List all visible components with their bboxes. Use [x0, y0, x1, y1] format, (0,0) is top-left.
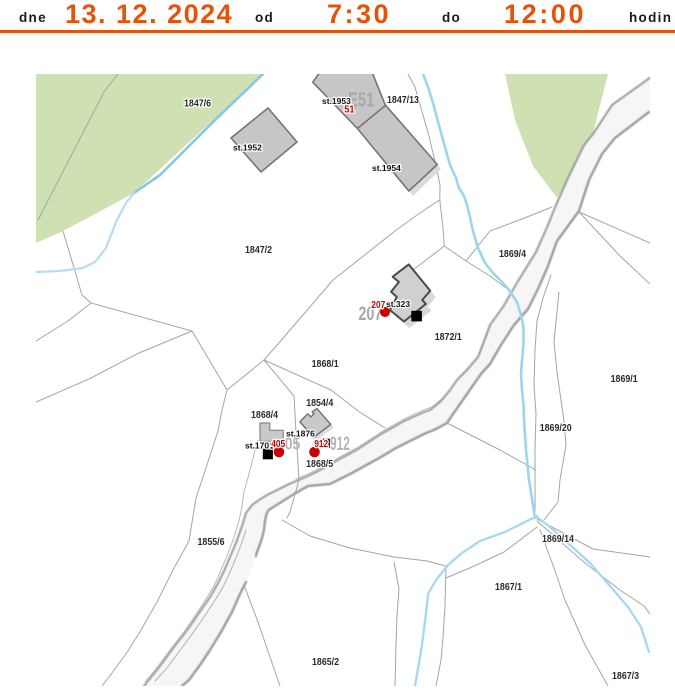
- svg-text:1847/6: 1847/6: [184, 98, 211, 110]
- svg-text:1872/1: 1872/1: [435, 331, 463, 343]
- svg-text:st.1954: st.1954: [372, 163, 401, 173]
- svg-text:1847/13: 1847/13: [387, 94, 419, 106]
- svg-text:1869/4: 1869/4: [499, 248, 527, 260]
- svg-text:1868/5: 1868/5: [306, 458, 334, 470]
- svg-text:912: 912: [330, 434, 350, 454]
- svg-text:207: 207: [371, 299, 385, 310]
- svg-text:1869/14: 1869/14: [542, 533, 575, 545]
- svg-text:st.1701: st.1701: [245, 441, 274, 451]
- svg-text:st.1952: st.1952: [233, 142, 262, 152]
- svg-text:1867/3: 1867/3: [612, 670, 639, 682]
- svg-text:1855/6: 1855/6: [198, 536, 225, 548]
- svg-text:51: 51: [344, 104, 355, 116]
- svg-text:1869/20: 1869/20: [540, 422, 572, 434]
- svg-text:1868/1: 1868/1: [312, 358, 340, 370]
- svg-text:st.323: st.323: [386, 299, 410, 309]
- svg-text:1854/4: 1854/4: [306, 397, 334, 409]
- svg-text:1867/1: 1867/1: [495, 581, 523, 593]
- svg-text:912: 912: [314, 438, 328, 449]
- svg-text:st.1876: st.1876: [286, 429, 315, 439]
- svg-text:1869/1: 1869/1: [611, 373, 639, 385]
- svg-text:1847/2: 1847/2: [245, 244, 272, 256]
- svg-text:1868/4: 1868/4: [251, 409, 279, 421]
- svg-text:405: 405: [271, 438, 285, 449]
- svg-text:1865/2: 1865/2: [312, 656, 339, 668]
